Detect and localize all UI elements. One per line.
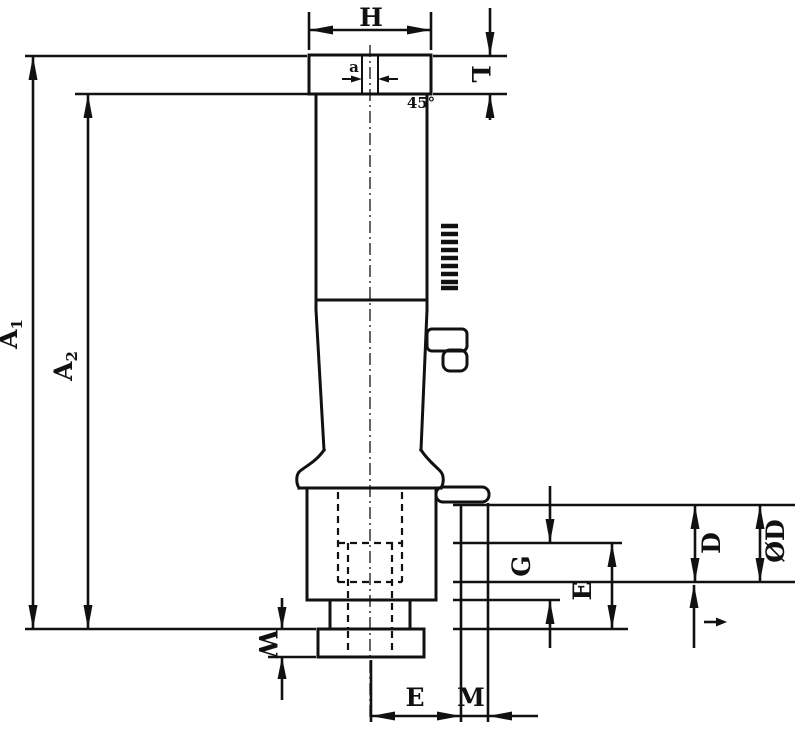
collar-right-curve xyxy=(421,450,443,488)
collar-left-curve xyxy=(297,450,324,488)
shank-marking-band xyxy=(441,226,458,288)
dimension-a1: A1 xyxy=(0,56,307,629)
label-slot-width: a xyxy=(349,58,359,76)
dimension-a2: A2 xyxy=(49,94,314,629)
label-chamfer: 45° xyxy=(407,94,435,112)
clamp-lug-lower xyxy=(443,350,467,371)
arrowhead xyxy=(691,505,700,529)
dimension-e-m-bottom: E M xyxy=(371,660,538,722)
arrowhead xyxy=(371,712,395,721)
drive-pin xyxy=(436,487,489,502)
arrowhead xyxy=(608,543,617,567)
dimension-g: G xyxy=(507,486,555,648)
label-e-bottom: E xyxy=(405,683,424,712)
arrowhead xyxy=(84,94,93,118)
arrowhead xyxy=(278,657,287,679)
label-d: D xyxy=(697,532,726,554)
label-h: H xyxy=(359,3,383,32)
arrowhead xyxy=(84,605,93,629)
arrowhead xyxy=(278,607,287,629)
dimension-h: H xyxy=(309,3,431,50)
dimension-l: L xyxy=(433,8,507,120)
dimension-e-side: E xyxy=(568,543,617,629)
label-m: M xyxy=(457,683,485,712)
arrowhead xyxy=(29,605,38,629)
dimension-d: D xyxy=(691,505,727,582)
right-extension-lines xyxy=(453,503,795,722)
insertion-arrow xyxy=(690,584,728,648)
dimension-od: ØD xyxy=(756,505,791,582)
arrowhead xyxy=(546,519,555,543)
arrowhead xyxy=(690,584,699,608)
label-a2: A2 xyxy=(49,351,81,382)
taper-left-edge xyxy=(316,310,324,450)
arrowhead xyxy=(488,712,512,721)
arrowhead xyxy=(437,712,461,721)
arrowhead xyxy=(546,600,555,624)
clamp-lug-upper xyxy=(427,329,467,351)
chamfer-annotation: 45° xyxy=(407,94,435,112)
dimension-drawing: H L A1 A2 W xyxy=(0,0,800,731)
taper-right-edge xyxy=(421,310,427,450)
technical-drawing-canvas: H L A1 A2 W xyxy=(0,0,800,731)
label-g: G xyxy=(507,555,536,576)
dimension-w: W xyxy=(25,598,316,700)
label-w: W xyxy=(253,629,282,659)
arrowhead xyxy=(486,94,495,118)
arrowhead xyxy=(407,26,431,35)
label-od: ØD xyxy=(761,519,790,562)
label-a1: A1 xyxy=(0,319,26,350)
label-e-side: E xyxy=(568,581,597,600)
small-right-arrow xyxy=(716,618,727,627)
small-arrowhead xyxy=(351,76,362,83)
small-arrowhead xyxy=(378,76,389,83)
label-l: L xyxy=(466,65,495,83)
arrowhead xyxy=(691,558,700,582)
arrowhead xyxy=(29,56,38,80)
arrowhead xyxy=(486,32,495,56)
arrowhead xyxy=(309,26,333,35)
arrowhead xyxy=(608,605,617,629)
bottom-flange xyxy=(318,629,424,657)
